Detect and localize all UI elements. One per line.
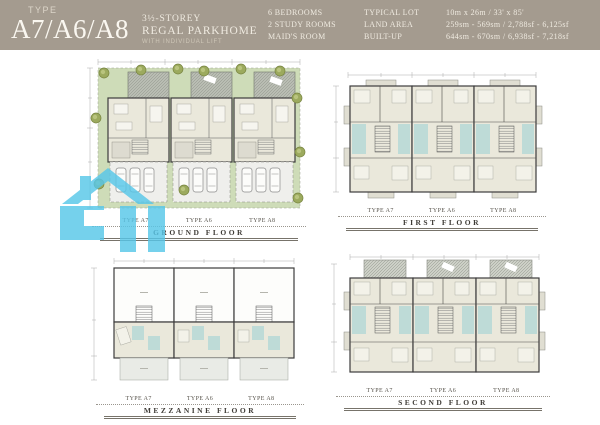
spec-attribute: TYPICAL LOT <box>364 9 446 18</box>
title-bar: TYPE A7/A6/A8 3½-STOREY REGAL PARKHOME W… <box>0 0 600 50</box>
unit-type-label: TYPE A6 <box>429 208 455 214</box>
car-icon <box>207 168 217 192</box>
unit-type-label: TYPE A7 <box>126 396 152 402</box>
spec-feature: 6 BEDROOMS <box>268 9 364 18</box>
first-floor-caption: TYPE A7 TYPE A6 TYPE A8 FIRST FLOOR <box>330 208 554 231</box>
product-tagline: WITH INDIVIDUAL LIFT <box>142 39 257 45</box>
storey-label: 3½-STOREY <box>142 14 257 24</box>
first-floor-plan <box>330 70 554 206</box>
floor-name: MEZZANINE FLOOR <box>88 406 312 415</box>
caption-divider <box>96 404 304 405</box>
second-floor-block: TYPE A7 TYPE A6 TYPE A8 SECOND FLOOR <box>328 252 558 411</box>
caption-underline <box>104 416 296 419</box>
second-floor-units <box>344 260 545 372</box>
unit-type-label: TYPE A8 <box>249 218 275 224</box>
spec-feature: 2 STUDY ROOMS <box>268 21 364 30</box>
floor-name: FIRST FLOOR <box>330 218 554 227</box>
unit-type-label: TYPE A6 <box>187 396 213 402</box>
caption-divider <box>338 216 546 217</box>
floor-name: SECOND FLOOR <box>328 398 558 407</box>
caption-underline <box>344 408 542 411</box>
spec-table: 6 BEDROOMS TYPICAL LOT 10m x 26m / 33' x… <box>268 9 596 41</box>
unit-type-label: TYPE A8 <box>248 396 274 402</box>
brochure-page: TYPE A7/A6/A8 3½-STOREY REGAL PARKHOME W… <box>0 0 600 425</box>
first-floor-units <box>344 80 542 198</box>
unit-type-label: TYPE A6 <box>430 388 456 394</box>
car-icon <box>193 168 203 192</box>
spec-value: 10m x 26m / 33' x 85' <box>446 9 596 18</box>
mezzanine-floor-plan <box>88 256 312 394</box>
spec-value: 644sm - 670sm / 6,938sf - 7,218sf <box>446 33 596 42</box>
mezzanine-floor-caption: TYPE A7 TYPE A6 TYPE A8 MEZZANINE FLOOR <box>88 396 312 419</box>
leg-2 <box>148 206 165 252</box>
second-floor-caption: TYPE A7 TYPE A6 TYPE A8 SECOND FLOOR <box>328 388 558 411</box>
car-icon <box>242 168 252 192</box>
unit-type-label: TYPE A8 <box>490 208 516 214</box>
type-block: TYPE A7/A6/A8 <box>11 5 129 43</box>
house-logo-watermark-icon <box>58 164 172 260</box>
unit-type-label: TYPE A7 <box>368 208 394 214</box>
spec-value: 259sm - 569sm / 2,788sf - 6,125sf <box>446 21 596 30</box>
deck <box>128 72 295 98</box>
roof <box>364 260 532 278</box>
mezzanine-units <box>114 268 294 380</box>
spec-attribute: BUILT-UP <box>364 33 446 42</box>
unit-type-label: TYPE A8 <box>493 388 519 394</box>
spec-attribute: LAND AREA <box>364 21 446 30</box>
mezzanine-floor-block: TYPE A7 TYPE A6 TYPE A8 MEZZANINE FLOOR <box>88 256 312 419</box>
car-icon <box>270 168 280 192</box>
first-floor-block: TYPE A7 TYPE A6 TYPE A8 FIRST FLOOR <box>330 70 554 231</box>
door-notch <box>84 210 104 226</box>
caption-divider <box>336 396 550 397</box>
product-name: REGAL PARKHOME <box>142 25 257 37</box>
second-floor-plan <box>328 252 558 386</box>
car-icon <box>256 168 266 192</box>
unit-type-label: TYPE A6 <box>186 218 212 224</box>
product-block: 3½-STOREY REGAL PARKHOME WITH INDIVIDUAL… <box>142 14 257 45</box>
unit-type-label: TYPE A7 <box>367 388 393 394</box>
model-name: A7/A6/A8 <box>11 15 129 43</box>
caption-underline <box>346 228 538 231</box>
roof <box>62 168 154 204</box>
leg-1 <box>120 206 136 252</box>
spec-feature: MAID'S ROOM <box>268 33 364 42</box>
